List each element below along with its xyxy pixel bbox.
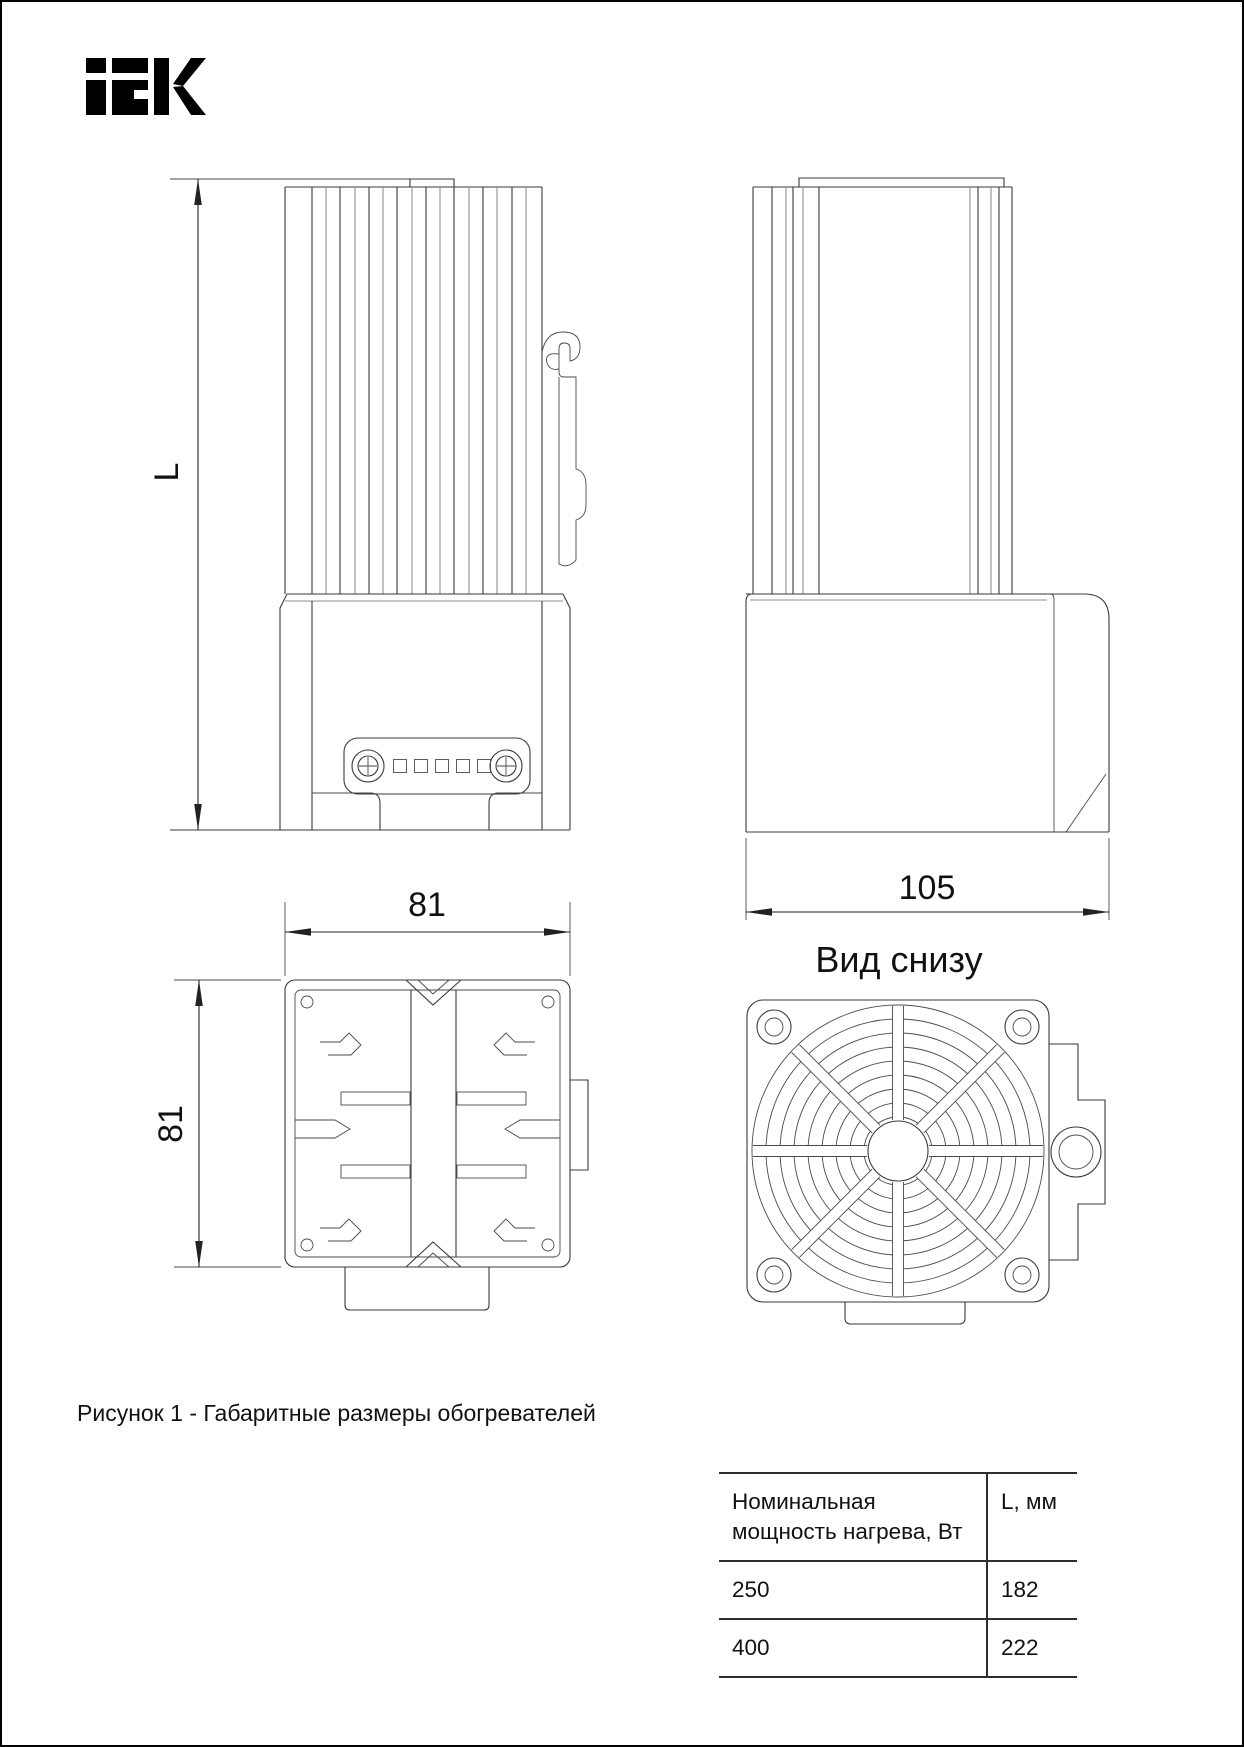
datasheet-page: L [0,0,1244,1747]
section-width-dim-label: 81 [408,886,446,924]
fan-grille [752,1005,1044,1297]
header-power: Номинальная мощность нагрева, Вт [719,1474,986,1560]
cell-length: 182 [986,1562,1077,1618]
terminal-screw-right [490,750,522,782]
table-header-row: Номинальная мощность нагрева, Вт L, мм [719,1472,1077,1562]
cell-power: 250 [719,1562,986,1618]
table-row: 250 182 [719,1562,1077,1620]
header-power-line1: Номинальная [732,1489,876,1514]
bottom-view-title: Вид снизу [815,939,982,980]
terminal-contacts [394,760,491,773]
front-view-drawing: L [142,152,622,852]
terminal-screw-left [352,750,384,782]
section-view-drawing: 81 81 [142,857,622,1332]
din-clip-profile [542,332,586,566]
bottom-view-drawing: Вид снизу [642,857,1122,1337]
section-height-dim-label: 81 [152,1105,190,1143]
cell-power: 400 [719,1620,986,1676]
side-view-drawing: 105 [642,152,1122,932]
header-length: L, мм [986,1474,1077,1560]
cell-length: 222 [986,1620,1077,1676]
power-length-table: Номинальная мощность нагрева, Вт L, мм 2… [719,1472,1077,1678]
iek-logo [86,58,206,115]
front-height-dim-label: L [148,463,186,482]
figure-caption: Рисунок 1 - Габаритные размеры обогреват… [77,1400,596,1427]
table-row: 400 222 [719,1620,1077,1678]
header-power-line2: мощность нагрева, Вт [732,1519,962,1544]
